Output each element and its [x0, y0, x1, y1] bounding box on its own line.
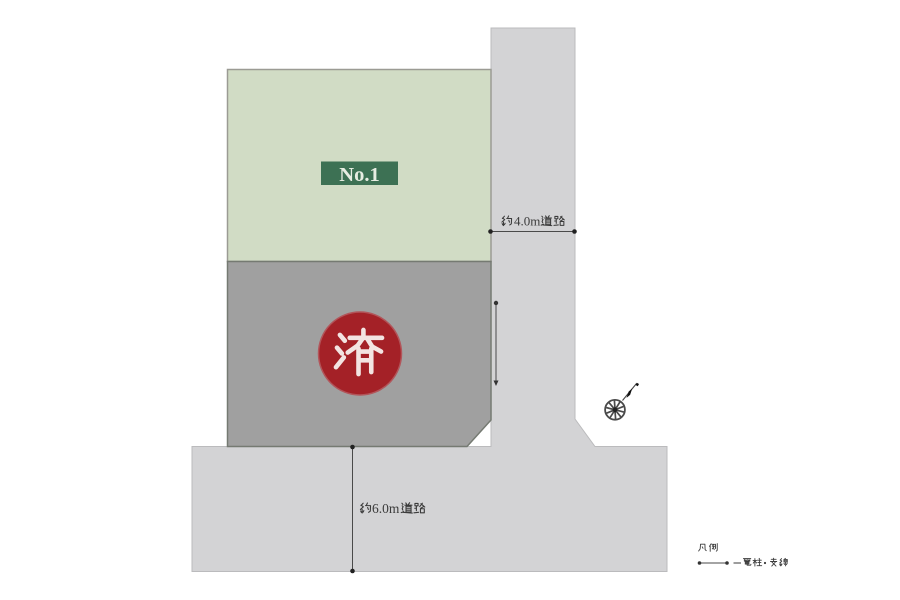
svg-text:6.0m: 6.0m [372, 501, 400, 516]
svg-text:No.1: No.1 [339, 164, 379, 186]
svg-text:4.0m: 4.0m [514, 214, 540, 229]
